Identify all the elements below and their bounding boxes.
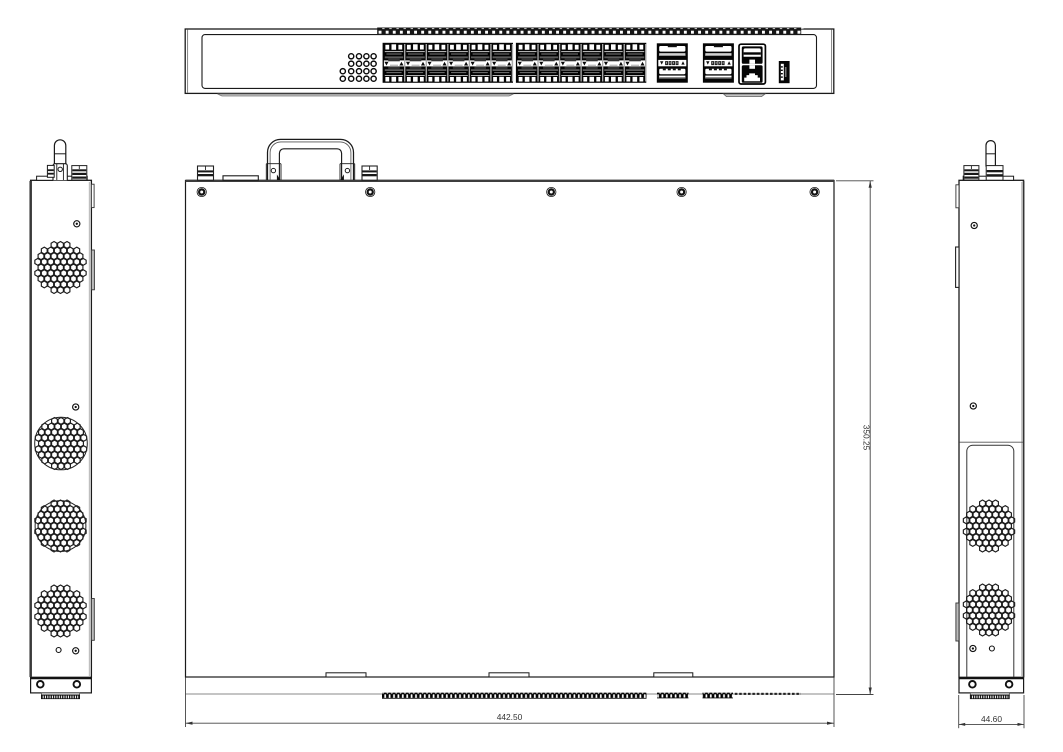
svg-text:442.50: 442.50	[497, 712, 523, 722]
svg-text:350.25: 350.25	[862, 425, 872, 451]
svg-text:44.60: 44.60	[981, 714, 1002, 724]
